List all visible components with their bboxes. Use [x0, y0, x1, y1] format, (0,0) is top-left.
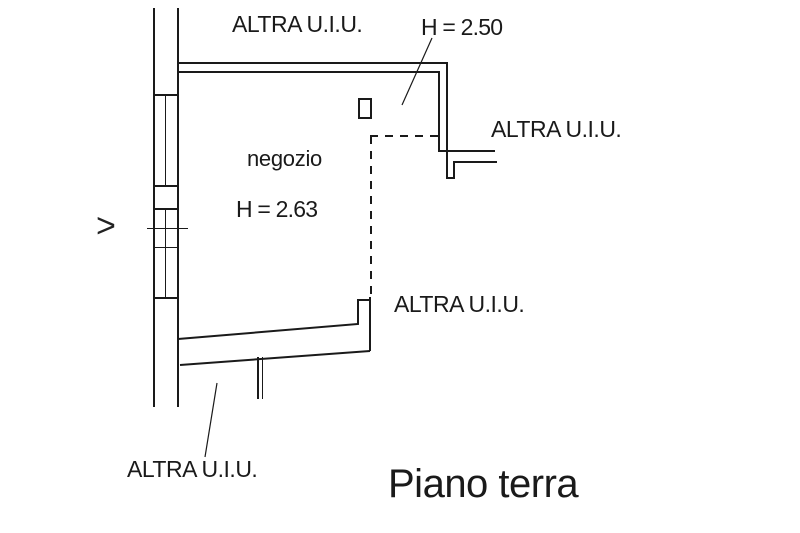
page-title: Piano terra	[388, 462, 578, 507]
leader-line-bottom-unit	[205, 383, 217, 457]
floor-plan: ALTRA U.I.U. H = 2.50 ALTRA U.I.U. negoz…	[0, 0, 800, 533]
label-height-2-63: H = 2.63	[236, 196, 317, 223]
leader-line-h250	[402, 38, 432, 105]
wall-bottom-upper-line	[178, 300, 371, 339]
wall-bottom-lower-line	[180, 351, 370, 365]
label-other-unit-bottom-left: ALTRA U.I.U.	[127, 456, 257, 483]
label-other-unit-top: ALTRA U.I.U.	[232, 11, 362, 38]
label-other-unit-right: ALTRA U.I.U.	[491, 116, 621, 143]
label-other-unit-bottom: ALTRA U.I.U.	[394, 291, 524, 318]
label-height-2-50: H = 2.50	[421, 14, 502, 41]
plan-lines-layer	[0, 0, 800, 533]
label-room-name: negozio	[247, 146, 322, 172]
direction-marker: >	[96, 207, 115, 246]
